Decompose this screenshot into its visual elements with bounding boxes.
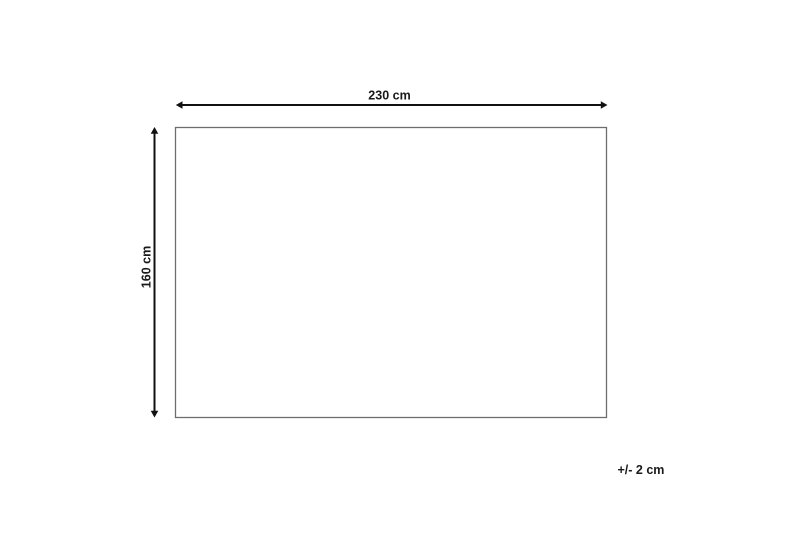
svg-text:+/- 2 cm: +/- 2 cm <box>618 463 665 477</box>
svg-text:230 cm: 230 cm <box>368 89 410 103</box>
svg-text:160 cm: 160 cm <box>140 246 154 288</box>
